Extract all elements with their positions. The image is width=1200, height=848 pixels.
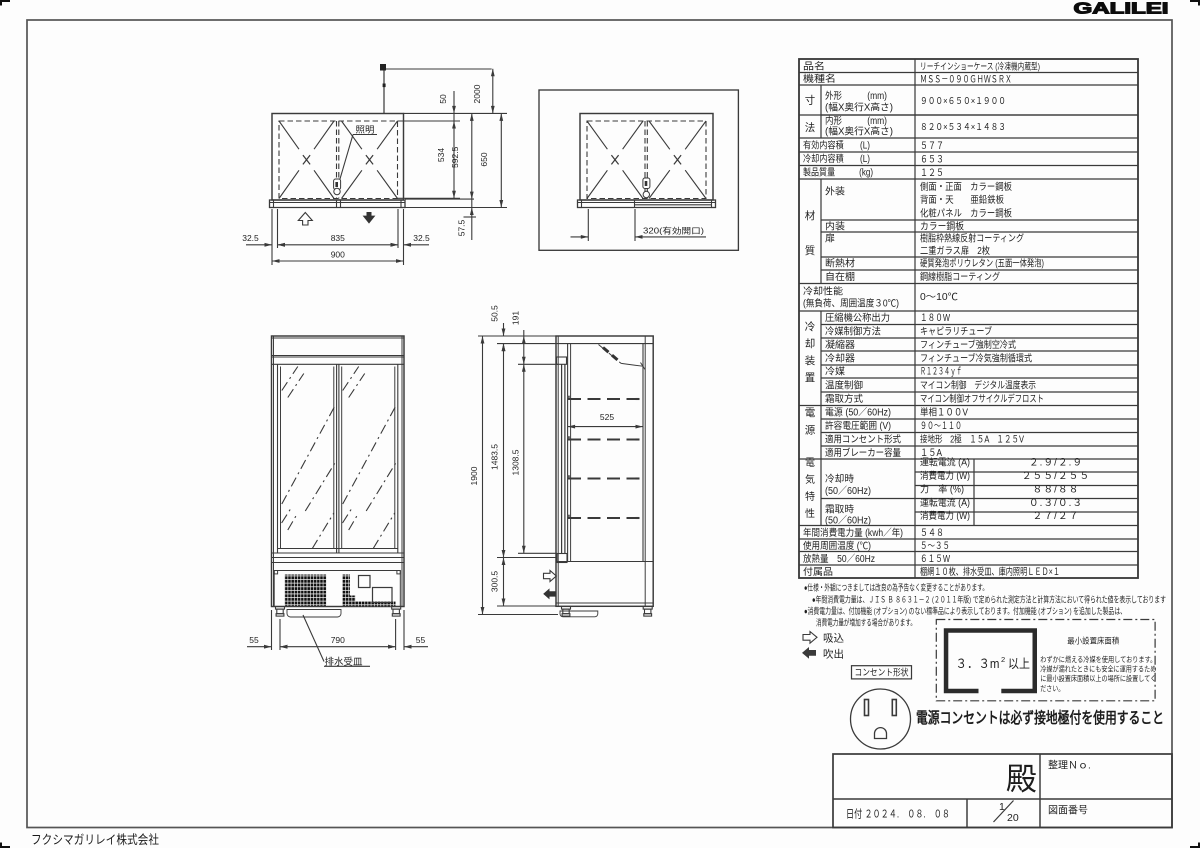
svg-text:冷媒: 冷媒 <box>825 365 845 378</box>
svg-text:フクシマガリレイ株式会社: フクシマガリレイ株式会社 <box>31 832 159 847</box>
svg-text:却: 却 <box>805 338 816 350</box>
svg-text:側面・正面 カラー鋼板: 側面・正面 カラー鋼板 <box>920 180 1012 193</box>
svg-text:冷媒制御方法: 冷媒制御方法 <box>825 325 881 338</box>
svg-text:鋼線樹脂コーティング: 鋼線樹脂コーティング <box>920 270 1000 283</box>
svg-text:ＭＳＳ－０９０ＧＨＷＳＲＸ: ＭＳＳ－０９０ＧＨＷＳＲＸ <box>920 75 1012 86</box>
svg-text:整理Ｎｏ.: 整理Ｎｏ. <box>1048 759 1091 772</box>
svg-text:材: 材 <box>805 209 816 222</box>
svg-text:硬質発泡ポリウレタン (五面一体発泡): 硬質発泡ポリウレタン (五面一体発泡) <box>920 257 1044 270</box>
svg-text:適用コンセント形式: 適用コンセント形式 <box>825 433 901 446</box>
svg-text:使用周囲温度 (℃): 使用周囲温度 (℃) <box>803 539 871 552</box>
svg-text:320(有効開口): 320(有効開口) <box>643 226 704 236</box>
svg-text:フィンチューブ冷気強制循環式: フィンチューブ冷気強制循環式 <box>920 352 1032 365</box>
svg-text:300.5: 300.5 <box>490 571 500 593</box>
svg-text:(無負荷、周囲温度３0℃): (無負荷、周囲温度３0℃) <box>803 297 899 310</box>
svg-text:運転電流 (A): 運転電流 (A) <box>920 496 970 509</box>
svg-text:55: 55 <box>416 635 426 645</box>
svg-text:２.９/２.９: ２.９/２.９ <box>1029 458 1083 469</box>
svg-text:６５３: ６５３ <box>920 155 944 166</box>
svg-text:650: 650 <box>479 152 489 166</box>
svg-text:霜取時: 霜取時 <box>825 504 854 516</box>
svg-text:２７/２７: ２７/２７ <box>1033 511 1080 522</box>
svg-text:GALILEI: GALILEI <box>1074 0 1169 17</box>
svg-text:圧縮機公称出力: 圧縮機公称出力 <box>825 311 890 324</box>
svg-text:背面・天 亜鉛鉄板: 背面・天 亜鉛鉄板 <box>920 193 1004 206</box>
svg-text:源: 源 <box>805 424 816 437</box>
svg-text:リーチインショーケース (冷凍機内蔵型): リーチインショーケース (冷凍機内蔵型) <box>920 61 1040 72</box>
svg-text:20: 20 <box>1007 812 1019 824</box>
svg-text:５～３５: ５～３５ <box>920 541 950 552</box>
svg-text:1900: 1900 <box>469 466 479 485</box>
svg-text:(幅X奥行X高さ): (幅X奥行X高さ) <box>825 125 893 138</box>
svg-text:Ｒ１２３４ｙｆ: Ｒ１２３４ｙｆ <box>920 366 962 378</box>
svg-text:191: 191 <box>511 311 521 325</box>
svg-text:気: 気 <box>805 473 815 486</box>
svg-text:６１５W: ６１５W <box>920 554 951 565</box>
svg-text:キャピラリチューブ: キャピラリチューブ <box>920 325 992 338</box>
svg-text:900: 900 <box>331 249 345 259</box>
svg-text:吹出: 吹出 <box>823 648 844 661</box>
svg-text:力 率 (%): 力 率 (%) <box>920 483 964 496</box>
svg-text:０.３/０.３: ０.３/０.３ <box>1029 498 1083 509</box>
svg-text:電源コンセントは必ず接地極付を使用すること: 電源コンセントは必ず接地極付を使用すること <box>916 708 1164 727</box>
svg-text:放熱量 50／60Hz: 放熱量 50／60Hz <box>803 552 875 565</box>
svg-text:最小設置床面積: 最小設置床面積 <box>1067 636 1119 646</box>
svg-text:接地形 2極 １５A １２５V: 接地形 2極 １５A １２５V <box>920 433 1024 446</box>
svg-text:冷媒が漏れたときにも安全に運用するため: 冷媒が漏れたときにも安全に運用するため <box>1040 665 1156 674</box>
svg-text:化粧パネル カラー鋼板: 化粧パネル カラー鋼板 <box>920 207 1012 220</box>
svg-text:日付 ２０２４. ０８. ０８: 日付 ２０２４. ０８. ０８ <box>846 808 950 821</box>
svg-text:殿: 殿 <box>1006 762 1037 797</box>
svg-text:９０～１１０: ９０～１１０ <box>920 421 962 432</box>
svg-text:1308.5: 1308.5 <box>511 449 521 475</box>
svg-text:断熱材: 断熱材 <box>825 257 855 270</box>
svg-text:(50／60Hz): (50／60Hz) <box>825 515 871 527</box>
svg-text:電: 電 <box>805 407 816 419</box>
svg-text:57.5: 57.5 <box>457 219 467 236</box>
svg-text:カラー鋼板: カラー鋼板 <box>920 220 964 233</box>
svg-text:二重ガラス扉 2枚: 二重ガラス扉 2枚 <box>920 244 990 257</box>
svg-text:外形 (mm): 外形 (mm) <box>825 90 887 102</box>
svg-text:許容電圧範囲 (V): 許容電圧範囲 (V) <box>825 419 891 432</box>
svg-text:寸: 寸 <box>805 94 816 107</box>
svg-text:吸込: 吸込 <box>823 633 844 645</box>
svg-text:質: 質 <box>805 244 816 257</box>
svg-text:コンセント形状: コンセント形状 <box>855 667 909 678</box>
svg-text:50: 50 <box>438 94 448 104</box>
svg-text:特: 特 <box>805 491 815 503</box>
svg-text:適用ブレーカー容量: 適用ブレーカー容量 <box>825 446 901 459</box>
svg-text:592.5: 592.5 <box>450 146 460 168</box>
svg-text:凝縮器: 凝縮器 <box>825 338 855 351</box>
svg-text:５７７: ５７７ <box>920 141 944 152</box>
svg-text:冷却器: 冷却器 <box>825 352 855 365</box>
svg-text:扉: 扉 <box>825 232 835 245</box>
svg-text:マイコン制御 デジタル温度表示: マイコン制御 デジタル温度表示 <box>920 379 1036 392</box>
svg-text:冷却時: 冷却時 <box>825 472 854 485</box>
svg-text:性: 性 <box>805 507 815 520</box>
svg-text:50.5: 50.5 <box>490 305 500 322</box>
svg-text:534: 534 <box>436 148 446 162</box>
svg-text:内形 (mm): 内形 (mm) <box>825 114 887 127</box>
svg-text:８８/８８: ８８/８８ <box>1033 485 1080 496</box>
svg-text:フィンチューブ強制空冷式: フィンチューブ強制空冷式 <box>920 338 1016 351</box>
svg-text:内装: 内装 <box>825 220 845 233</box>
svg-text:わずかに燃える冷媒を使用しております。: わずかに燃える冷媒を使用しております。 <box>1040 655 1156 664</box>
svg-text:付属品: 付属品 <box>803 566 833 578</box>
svg-text:５４８: ５４８ <box>920 528 944 539</box>
svg-text:温度制御: 温度制御 <box>825 379 863 392</box>
svg-text:照明: 照明 <box>356 125 375 135</box>
svg-text:835: 835 <box>331 233 345 243</box>
svg-text:単相１００V: 単相１００V <box>920 406 968 419</box>
svg-text:冷却性能: 冷却性能 <box>803 285 843 298</box>
svg-text:年間消費電力量 (kwh／年): 年間消費電力量 (kwh／年) <box>803 526 903 539</box>
svg-text:●年間消費電力量は、ＪＩＳ Ｂ ８６３１－２ (２０１１年版: ●年間消費電力量は、ＪＩＳ Ｂ ８６３１－２ (２０１１年版) で定められた測定… <box>812 594 1166 605</box>
svg-text:８２０×５３４×１４８３: ８２０×５３４×１４８３ <box>920 122 1006 133</box>
svg-text:790: 790 <box>331 635 345 645</box>
svg-text:外装: 外装 <box>825 185 845 198</box>
svg-text:電源 (50／60Hz): 電源 (50／60Hz) <box>825 406 891 419</box>
svg-text:１２５: １２５ <box>920 168 944 179</box>
svg-text:2: 2 <box>1001 655 1005 664</box>
svg-text:電: 電 <box>805 457 815 469</box>
svg-text:品名: 品名 <box>803 60 825 73</box>
svg-text:消費電力量が増加する場合があります。: 消費電力量が増加する場合があります。 <box>816 617 916 628</box>
svg-text:0～10℃: 0～10℃ <box>920 292 958 303</box>
svg-text:置: 置 <box>805 372 816 384</box>
svg-text:棚網１０枚、排水受皿、庫内照明ＬＥＤ×１: 棚網１０枚、排水受皿、庫内照明ＬＥＤ×１ <box>920 565 1060 578</box>
svg-text:に最小設置床面積以上の場所に設置してく: に最小設置床面積以上の場所に設置してく <box>1040 674 1156 683</box>
svg-text:以上: 以上 <box>1008 657 1030 671</box>
svg-text:機種名: 機種名 <box>803 72 836 85</box>
svg-text:55: 55 <box>249 635 259 645</box>
svg-text:図面番号: 図面番号 <box>1048 805 1088 817</box>
svg-text:消費電力 (W): 消費電力 (W) <box>920 469 970 482</box>
svg-text:法: 法 <box>805 121 816 134</box>
svg-text:(幅X奥行X高さ): (幅X奥行X高さ) <box>825 101 893 114</box>
svg-text:２５５/２５５: ２５５/２５５ <box>1022 471 1091 482</box>
svg-text:消費電力 (W): 消費電力 (W) <box>920 509 970 522</box>
svg-text:９００×６５０×１９００: ９００×６５０×１９００ <box>920 96 1006 107</box>
svg-text:1483.5: 1483.5 <box>490 444 500 470</box>
svg-text:525: 525 <box>600 412 614 422</box>
svg-text:霜取方式: 霜取方式 <box>825 392 863 405</box>
svg-text:●仕様・外観につきましては改良の為予告なく変更することがあり: ●仕様・外観につきましては改良の為予告なく変更することがあります。 <box>804 582 988 593</box>
svg-text:３．３m: ３．３m <box>956 657 1000 671</box>
svg-text:製品質量 (kg): 製品質量 (kg) <box>803 166 873 179</box>
svg-text:32.5: 32.5 <box>413 233 430 243</box>
svg-text:ださい。: ださい。 <box>1040 684 1064 693</box>
svg-text:冷却内容積 (L): 冷却内容積 (L) <box>803 152 870 165</box>
svg-text:装: 装 <box>805 354 816 367</box>
svg-text:マイコン制御オフサイクルデフロスト: マイコン制御オフサイクルデフロスト <box>920 392 1044 405</box>
svg-text:樹脂枠熱線反射コーティング: 樹脂枠熱線反射コーティング <box>920 232 1024 245</box>
svg-text:有効内容積 (L): 有効内容積 (L) <box>803 139 870 152</box>
svg-text:運転電流 (A): 運転電流 (A) <box>920 456 970 469</box>
svg-text:32.5: 32.5 <box>242 233 259 243</box>
svg-text:自在棚: 自在棚 <box>825 270 855 283</box>
svg-text:●消費電力量は、付加機能 (オプション) のない標準品により: ●消費電力量は、付加機能 (オプション) のない標準品により表示しております。付… <box>804 605 1126 616</box>
svg-text:１８０W: １８０W <box>920 313 951 324</box>
svg-text:(50／60Hz): (50／60Hz) <box>825 485 871 497</box>
svg-text:冷: 冷 <box>805 320 816 333</box>
svg-text:2000: 2000 <box>472 84 482 103</box>
